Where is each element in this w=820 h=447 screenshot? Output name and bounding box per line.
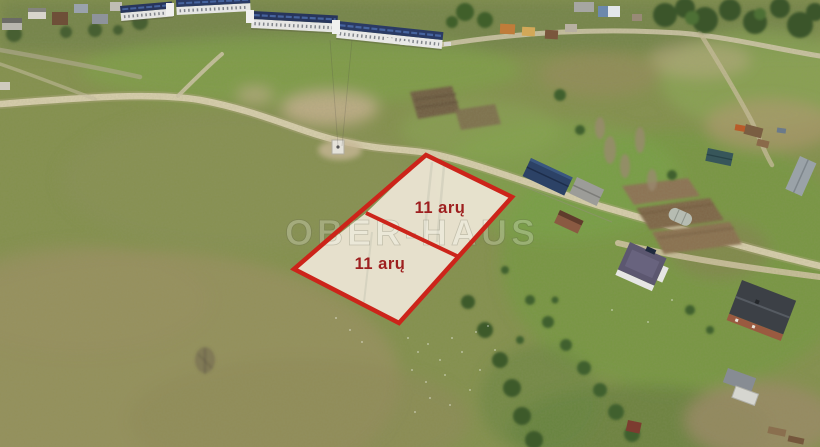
aerial-photo-canvas: OBER-HAUS 11 arų 11 arų <box>0 0 820 447</box>
gable-tower <box>166 3 174 16</box>
gable-tower <box>332 20 340 34</box>
aerial-photo: OBER-HAUS 11 arų 11 arų <box>0 0 820 447</box>
gable-tower <box>246 10 254 23</box>
plot-label-lower: 11 arų <box>355 255 406 273</box>
plot-label-upper: 11 arų <box>415 199 466 217</box>
watermark-text: OBER-HAUS <box>285 212 539 253</box>
